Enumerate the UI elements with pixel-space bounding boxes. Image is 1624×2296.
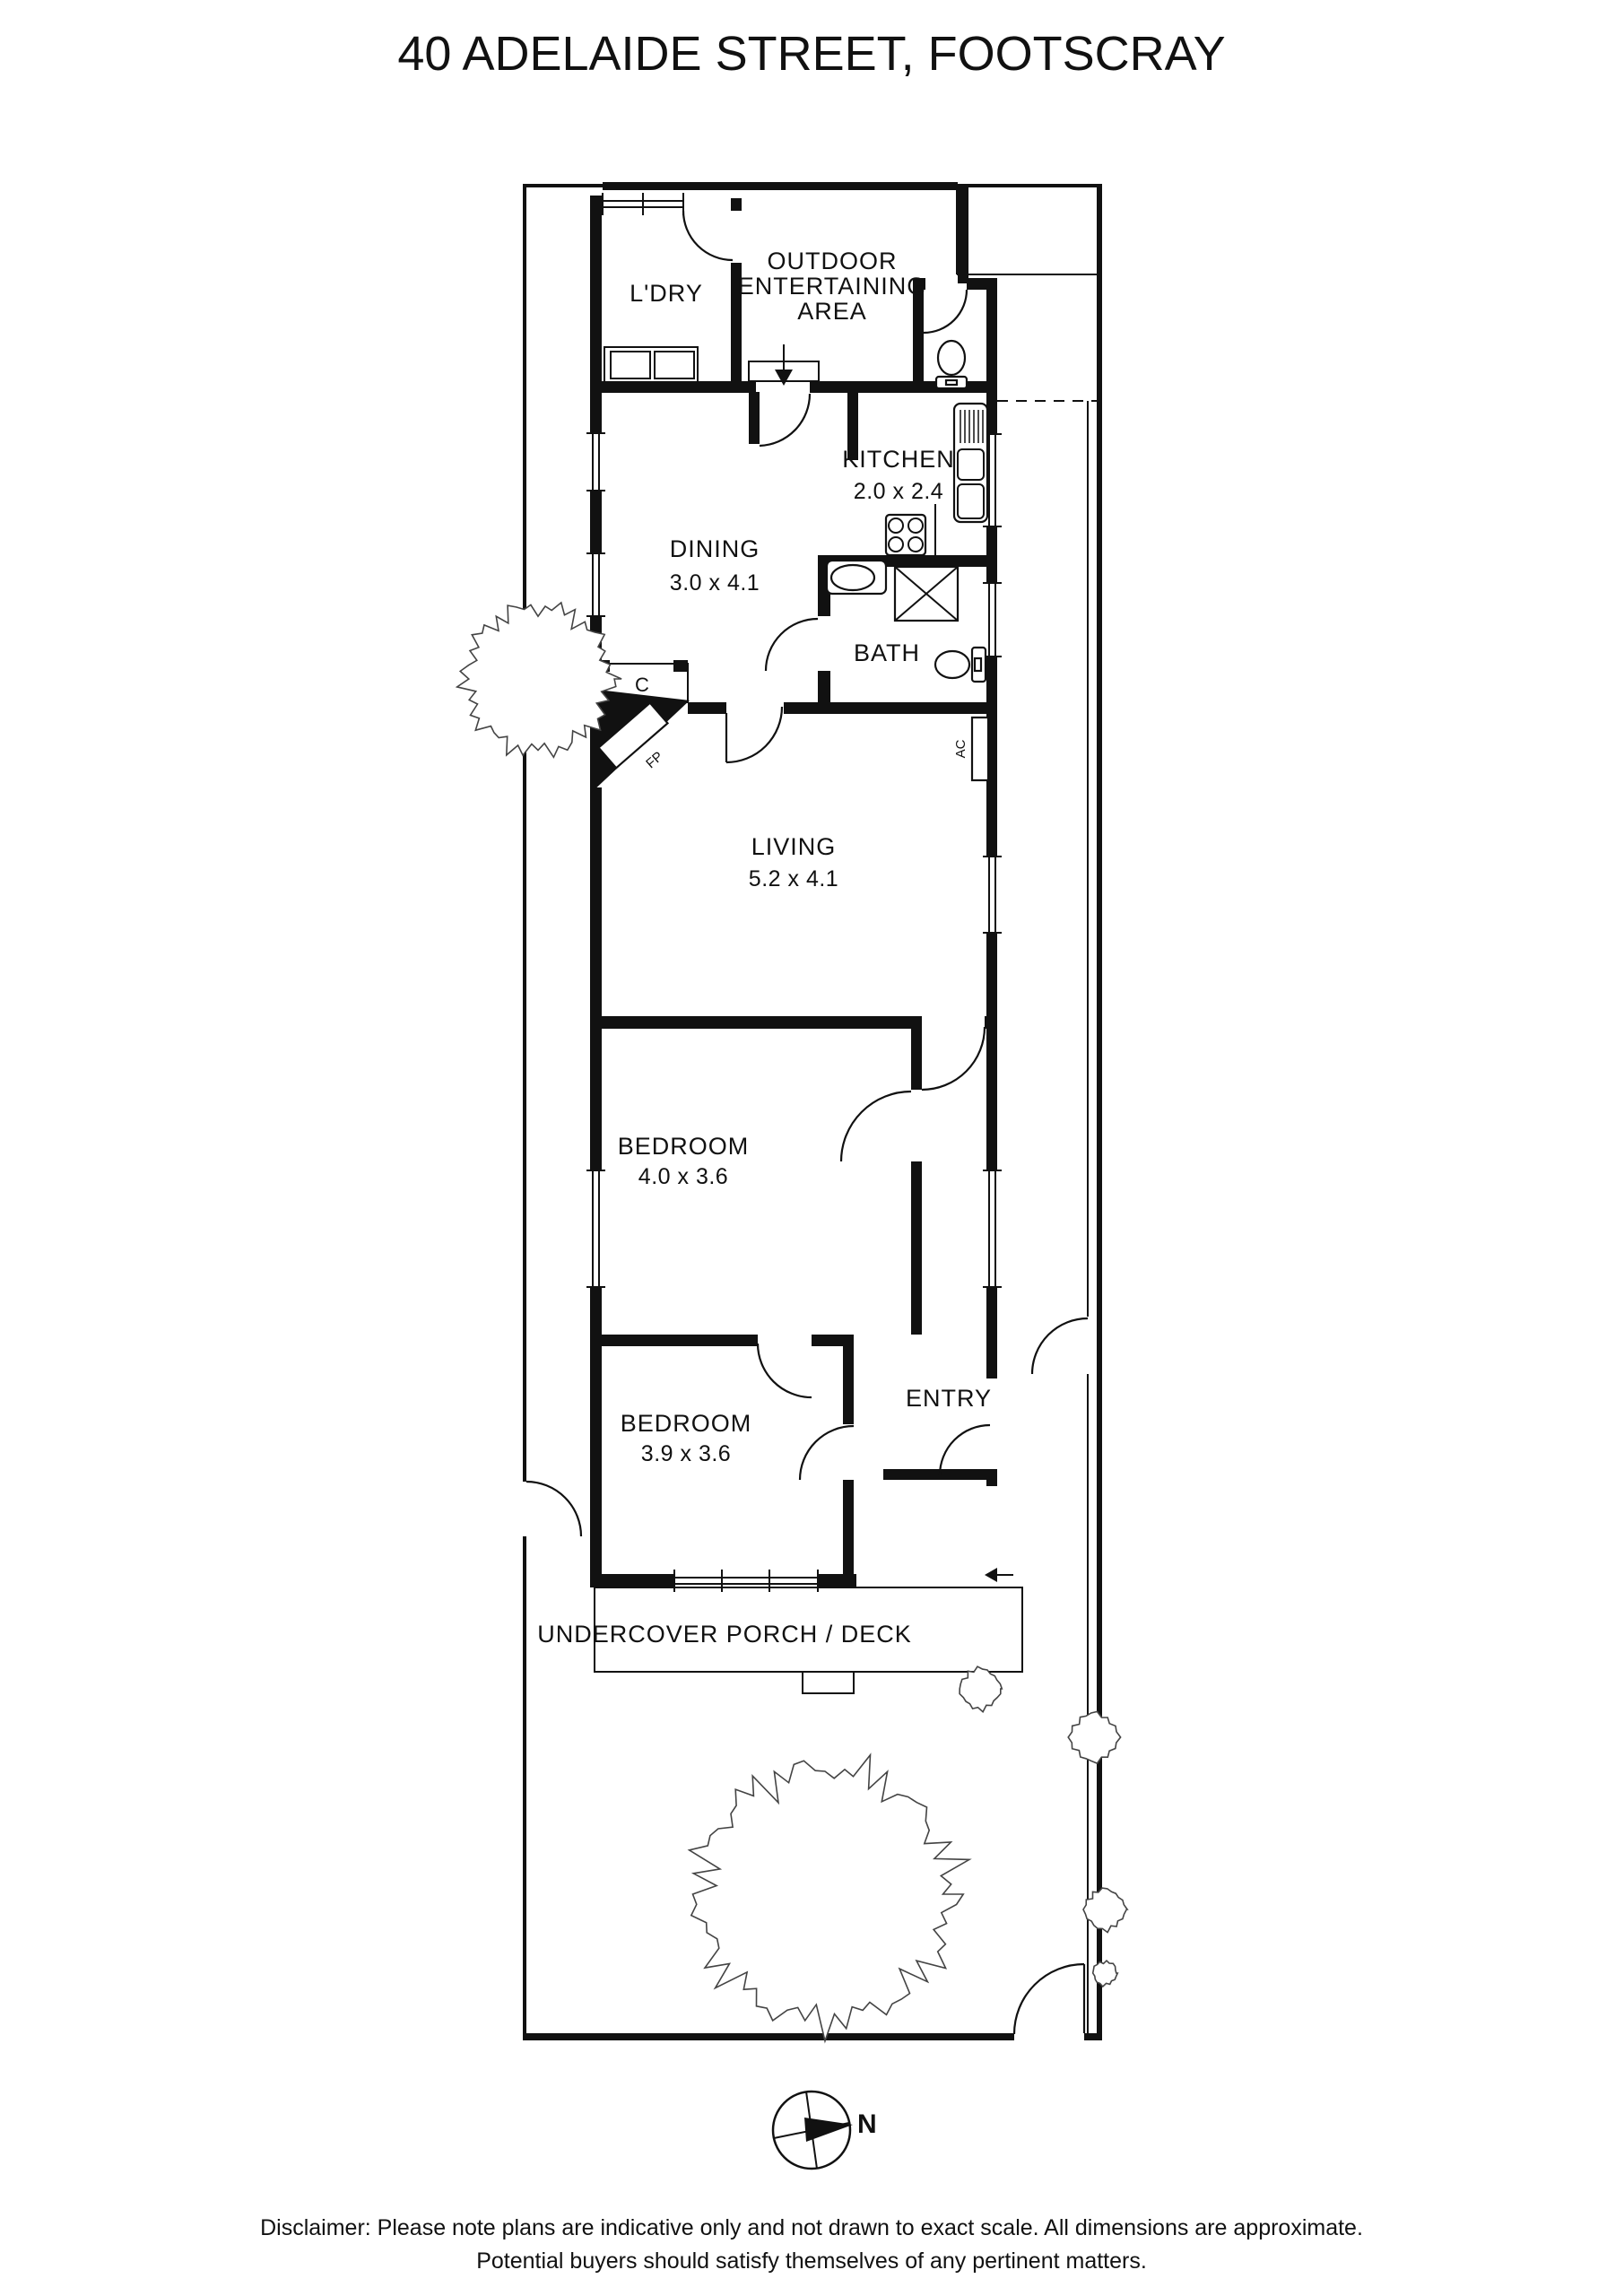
laundry-appliances [604, 347, 698, 383]
label-kitchen: KITCHEN [842, 446, 955, 473]
stove-cooktop [886, 504, 935, 555]
label-porch: UNDERCOVER PORCH / DECK [537, 1621, 912, 1648]
label-fireplace: FP [643, 749, 666, 771]
fridge [954, 404, 987, 522]
disclaimer-line-2: Potential buyers should satisfy themselv… [476, 2248, 1147, 2274]
ac-unit [972, 717, 988, 780]
label-dining: DINING [670, 535, 760, 562]
fireplace [590, 689, 690, 794]
disclaimer: Disclaimer: Please note plans are indica… [260, 2215, 1363, 2274]
floor-plan: 40 ADELAIDE STREET, FOOTSCRAY [0, 0, 1624, 2296]
label-dining-dims: 3.0 x 4.1 [670, 570, 760, 596]
page-title: 40 ADELAIDE STREET, FOOTSCRAY [397, 27, 1225, 81]
disclaimer-line-1: Disclaimer: Please note plans are indica… [260, 2215, 1363, 2240]
compass-rose: N [773, 2092, 877, 2169]
side-path [997, 401, 1097, 2033]
door-swings [526, 211, 1088, 2034]
label-bedroom2-dims: 3.9 x 3.6 [641, 1441, 731, 1466]
label-bedroom2: BEDROOM [621, 1410, 752, 1437]
fixtures [590, 341, 988, 794]
bath-vanity [827, 561, 886, 594]
label-closet: C [635, 674, 649, 696]
label-kitchen-dims: 2.0 x 2.4 [854, 479, 943, 504]
adjoining-structure-outline [957, 187, 1097, 274]
window-front [674, 1570, 818, 1592]
label-ldry: L'DRY [630, 280, 703, 307]
label-ac: AC [953, 739, 968, 758]
window-west-1 [586, 433, 605, 491]
label-bedroom1-dims: 4.0 x 3.6 [638, 1164, 728, 1189]
label-bedroom1: BEDROOM [618, 1133, 750, 1160]
bush-icon [1093, 1961, 1118, 1987]
label-bath: BATH [854, 639, 920, 666]
wc-toilet [936, 341, 967, 388]
label-living: LIVING [751, 833, 837, 860]
shower [895, 567, 958, 621]
bush-icon [1083, 1888, 1127, 1932]
label-entry: ENTRY [906, 1385, 992, 1412]
windows [586, 193, 1002, 1592]
label-outdoor-1: OUTDOOR [768, 248, 898, 274]
window-east-living [983, 857, 1002, 933]
north-label: N [857, 2109, 877, 2139]
window-east-bath [983, 583, 1002, 657]
label-living-dims: 5.2 x 4.1 [749, 866, 838, 891]
label-outdoor-3: AREA [797, 298, 867, 325]
room-labels: L'DRY OUTDOOR ENTERTAINING AREA KITCHEN … [537, 248, 992, 1648]
window-east-hall [983, 1170, 1002, 1287]
window-west-bedroom [586, 1170, 605, 1287]
window-west-2 [586, 553, 605, 616]
property-boundary [523, 182, 1102, 2040]
bush-icon [960, 1666, 1002, 1712]
garden-trees [457, 603, 1127, 2041]
bush-icon [1068, 1711, 1120, 1763]
north-needle-icon [804, 2118, 853, 2142]
label-outdoor-2: ENTERTAINING [738, 273, 927, 300]
bath-toilet [935, 648, 986, 682]
tree-icon [690, 1755, 969, 2041]
